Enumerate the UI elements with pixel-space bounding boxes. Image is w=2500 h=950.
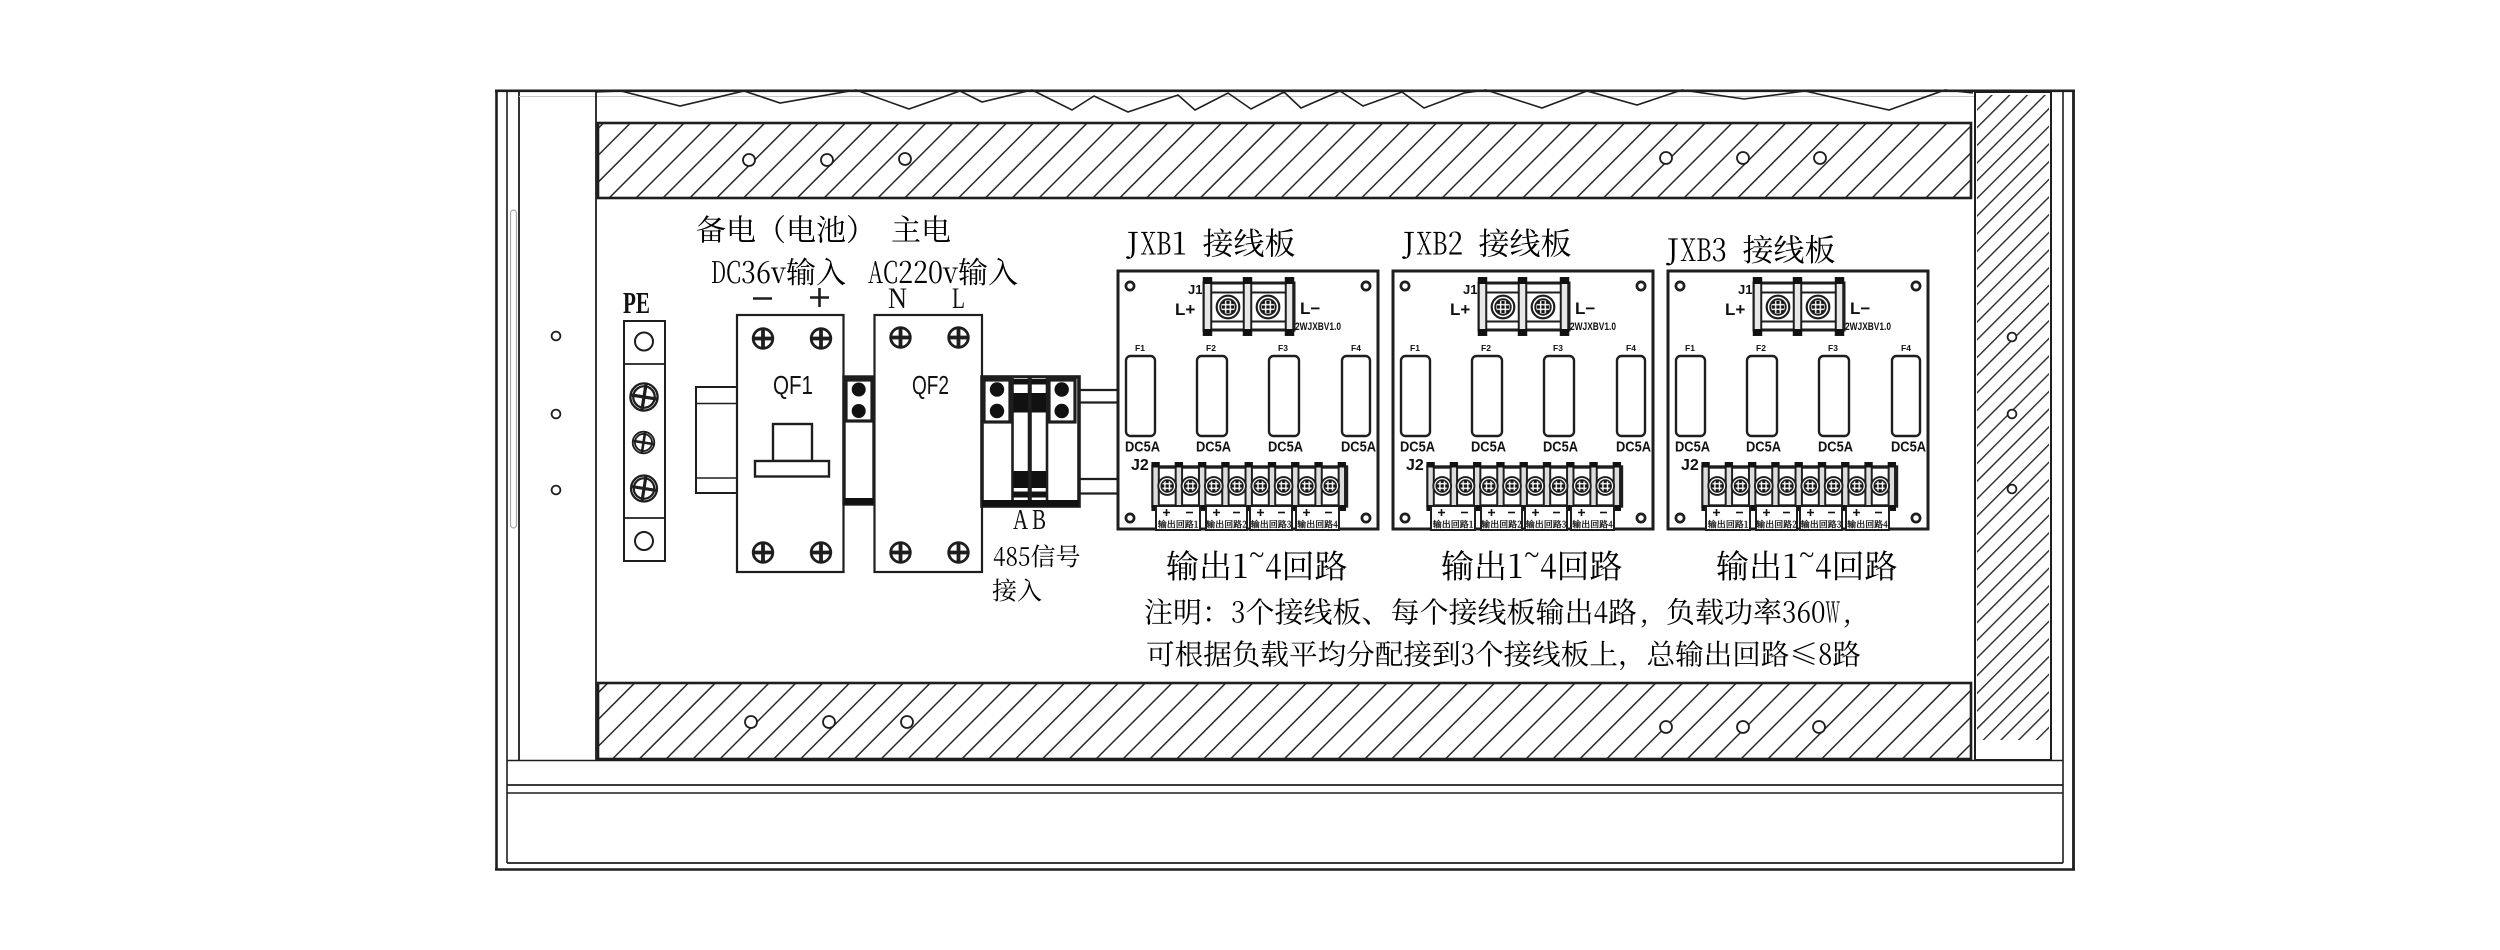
svg-text:J1: J1 xyxy=(1738,282,1752,297)
svg-text:L: L xyxy=(952,282,965,315)
svg-text:DC5A: DC5A xyxy=(1341,439,1376,456)
svg-text:F3: F3 xyxy=(1278,343,1288,353)
svg-text:L−: L− xyxy=(1575,299,1595,318)
svg-text:QF2: QF2 xyxy=(912,370,949,400)
svg-text:DC5A: DC5A xyxy=(1268,439,1303,456)
svg-text:A B: A B xyxy=(1013,505,1046,536)
svg-text:J2: J2 xyxy=(1681,457,1699,474)
svg-text:DC5A: DC5A xyxy=(1471,439,1506,456)
svg-text:F2: F2 xyxy=(1756,343,1766,353)
svg-text:DC5A: DC5A xyxy=(1616,439,1651,456)
svg-text:L−: L− xyxy=(1300,299,1320,318)
svg-text:F4: F4 xyxy=(1901,343,1911,353)
svg-text:F4: F4 xyxy=(1626,343,1636,353)
svg-text:2WJXBV1.0: 2WJXBV1.0 xyxy=(1570,321,1616,333)
svg-text:DC5A: DC5A xyxy=(1196,439,1231,456)
svg-text:F3: F3 xyxy=(1828,343,1838,353)
svg-text:F2: F2 xyxy=(1206,343,1216,353)
svg-text:J1: J1 xyxy=(1188,282,1202,297)
svg-text:F2: F2 xyxy=(1481,343,1491,353)
svg-text:F1: F1 xyxy=(1685,343,1695,353)
svg-text:J1: J1 xyxy=(1463,282,1477,297)
svg-text:DC5A: DC5A xyxy=(1125,439,1160,456)
svg-text:DC5A: DC5A xyxy=(1818,439,1853,456)
svg-text:F4: F4 xyxy=(1351,343,1361,353)
svg-text:N: N xyxy=(888,282,907,315)
svg-text:L−: L− xyxy=(1850,299,1870,318)
svg-text:J2: J2 xyxy=(1131,457,1149,474)
svg-text:J2: J2 xyxy=(1406,457,1424,474)
svg-text:DC5A: DC5A xyxy=(1400,439,1435,456)
svg-text:2WJXBV1.0: 2WJXBV1.0 xyxy=(1295,321,1341,333)
svg-text:F1: F1 xyxy=(1135,343,1145,353)
svg-text:DC5A: DC5A xyxy=(1543,439,1578,456)
svg-text:DC5A: DC5A xyxy=(1891,439,1926,456)
svg-text:2WJXBV1.0: 2WJXBV1.0 xyxy=(1845,321,1891,333)
svg-text:DC5A: DC5A xyxy=(1675,439,1710,456)
svg-text:DC5A: DC5A xyxy=(1746,439,1781,456)
svg-text:L+: L+ xyxy=(1175,300,1195,319)
svg-text:L+: L+ xyxy=(1725,300,1745,319)
svg-text:F1: F1 xyxy=(1410,343,1420,353)
svg-text:F3: F3 xyxy=(1553,343,1563,353)
svg-text:L+: L+ xyxy=(1450,300,1470,319)
svg-text:QF1: QF1 xyxy=(773,370,813,400)
svg-text:PE: PE xyxy=(623,285,650,320)
